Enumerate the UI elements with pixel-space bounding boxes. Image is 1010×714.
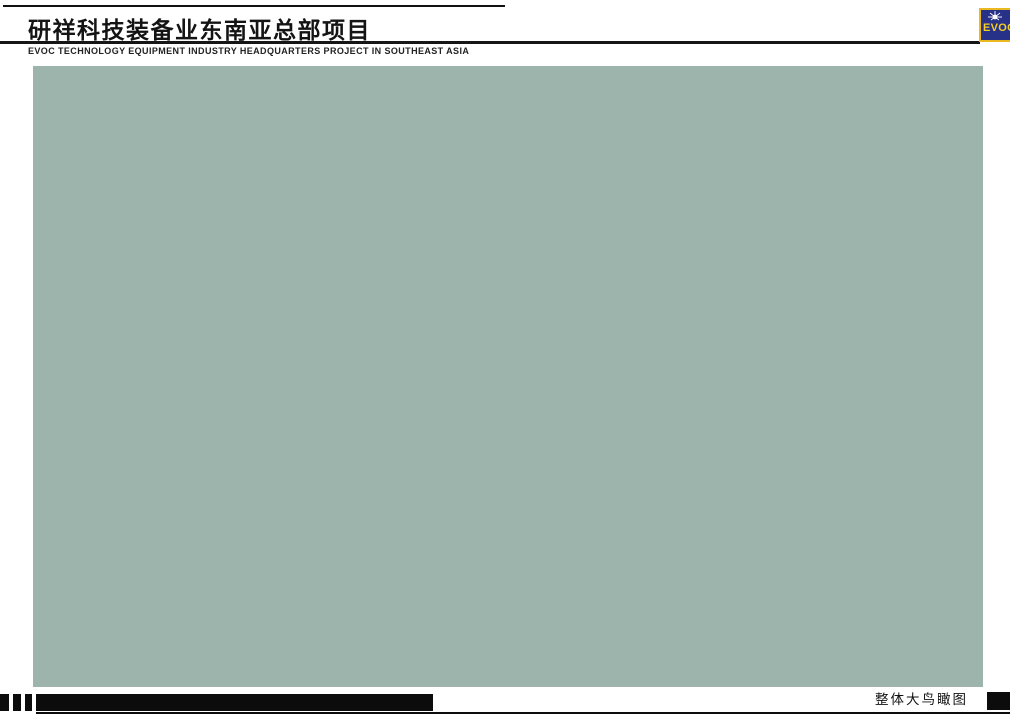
footer-tick <box>0 694 9 711</box>
header-top-rule <box>3 5 505 7</box>
page-title: 研祥科技装备业东南亚总部项目 <box>28 11 371 45</box>
title-underline <box>0 41 980 44</box>
page-subtitle: EVOC TECHNOLOGY EQUIPMENT INDUSTRY HEADQ… <box>28 46 469 56</box>
aerial-render-svg <box>33 66 983 687</box>
drawing-caption: 整体大鸟瞰图 <box>875 691 968 709</box>
footer-tick <box>25 694 32 711</box>
aerial-rendering <box>33 66 983 687</box>
logo-text: EVOC <box>983 22 1010 34</box>
footer-end-square <box>987 692 1010 710</box>
footer-bar <box>36 694 433 711</box>
footer-tick <box>13 694 21 711</box>
presentation-board: 研祥科技装备业东南亚总部项目 EVOC TECHNOLOGY EQUIPMENT… <box>0 0 1010 714</box>
evoc-logo: EVOC <box>979 8 1010 42</box>
